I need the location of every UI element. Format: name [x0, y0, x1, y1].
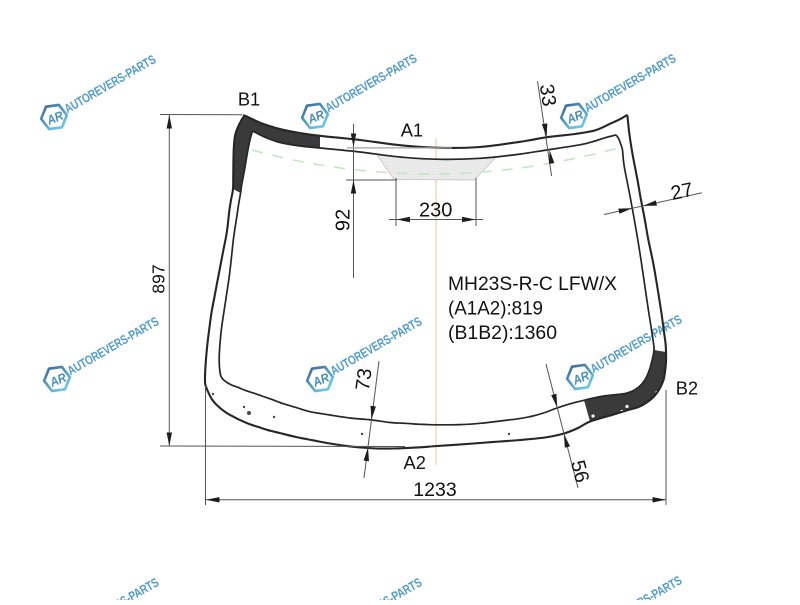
svg-text:B2: B2: [676, 377, 698, 398]
svg-text:(A1A2):819: (A1A2):819: [448, 297, 543, 319]
svg-text:27: 27: [669, 179, 695, 205]
svg-text:(B1B2):1360: (B1B2):1360: [448, 322, 557, 344]
svg-text:A1: A1: [401, 119, 423, 140]
svg-text:73: 73: [352, 367, 377, 392]
svg-text:1233: 1233: [413, 479, 456, 501]
svg-text:B1: B1: [238, 88, 260, 109]
svg-text:33: 33: [535, 83, 560, 108]
svg-text:92: 92: [332, 209, 354, 231]
svg-text:897: 897: [148, 264, 168, 293]
svg-text:A2: A2: [404, 452, 426, 473]
svg-text:230: 230: [419, 200, 452, 222]
svg-text:MH23S-R-C LFW/X: MH23S-R-C LFW/X: [448, 273, 617, 295]
